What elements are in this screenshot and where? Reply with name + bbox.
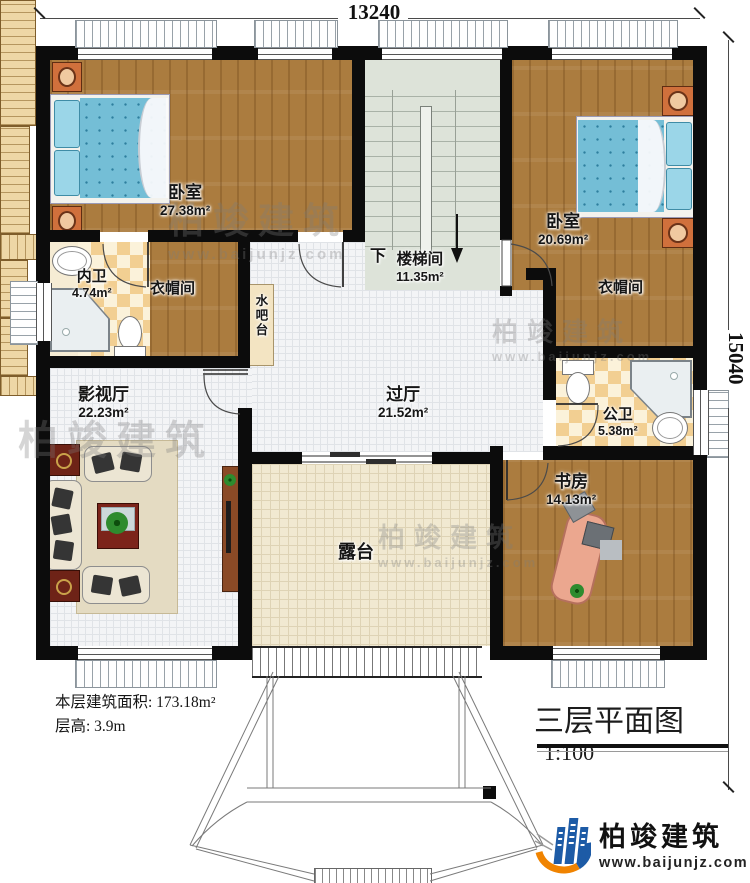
logo-website: www.baijunjz.com — [599, 855, 748, 871]
sliding-door-panel — [366, 459, 396, 464]
dimension-width: 13240 — [337, 0, 411, 25]
company-logo: 柏竣建筑 www.baijunjz.com — [533, 812, 748, 874]
stair-arrow-head — [451, 248, 463, 263]
room-name: 卧室 — [160, 183, 210, 203]
room-label-ensuite-bath: 内卫 4.74m² — [72, 268, 112, 300]
logo-text-group: 柏竣建筑 www.baijunjz.com — [599, 815, 748, 871]
title-block: 三层平面图 1:100 — [534, 696, 734, 766]
room-area: 21.52m² — [378, 405, 428, 421]
room-label-water-bar: 水吧台 — [250, 294, 270, 338]
door-leaf-bedroom-right — [502, 240, 511, 286]
logo-company-name: 柏竣建筑 — [599, 815, 748, 854]
room-name: 水吧台 — [253, 294, 268, 338]
room-area: 27.38m² — [160, 203, 210, 219]
room-label-bedroom-left: 卧室 27.38m² — [160, 183, 210, 219]
room-area: 22.23m² — [78, 405, 129, 421]
floor-plan: 柏竣建筑 www.baijunjz.com 柏竣建筑 柏竣建筑 www.baij… — [0, 0, 750, 883]
room-name: 卧室 — [538, 212, 588, 232]
room-name: 露台 — [338, 542, 374, 563]
room-label-study: 书房 14.13m² — [546, 472, 596, 508]
room-area: 14.13m² — [546, 492, 596, 508]
down-text: 下 — [370, 248, 386, 267]
logo-mark-icon — [533, 812, 591, 874]
room-name: 书房 — [546, 472, 596, 492]
room-label-cloakroom-left: 衣帽间 — [150, 280, 195, 298]
room-name: 过厅 — [378, 385, 428, 405]
title-underline-thin — [537, 751, 728, 752]
room-name: 衣帽间 — [598, 279, 643, 297]
room-label-public-bath: 公卫 5.38m² — [598, 406, 638, 438]
title-underline — [537, 744, 728, 748]
note-floor-height: 层高: 3.9m — [55, 714, 126, 736]
room-label-hall: 过厅 21.52m² — [378, 385, 428, 421]
lower-roof-outline — [190, 672, 543, 881]
room-area: 5.38m² — [598, 424, 638, 439]
stair-down-label: 下 — [370, 248, 386, 267]
door-arc-bedroom-right — [511, 244, 552, 286]
door-arc-study — [507, 463, 548, 500]
room-area: 20.69m² — [538, 232, 588, 248]
room-name: 内卫 — [72, 268, 112, 286]
door-arc-public-bath — [558, 405, 598, 446]
room-area: 4.74m² — [72, 286, 112, 301]
room-name: 影视厅 — [78, 385, 129, 405]
door-arc-media — [204, 375, 240, 414]
room-name: 公卫 — [598, 406, 638, 424]
plan-title: 三层平面图 — [534, 705, 684, 738]
room-name: 衣帽间 — [150, 280, 195, 298]
room-label-terrace: 露台 — [338, 542, 374, 563]
dimension-height: 15040 — [723, 332, 748, 385]
room-label-media-room: 影视厅 22.23m² — [78, 385, 129, 421]
room-label-stairwell: 楼梯间 11.35m² — [396, 251, 444, 285]
sliding-door-panel — [330, 452, 360, 457]
note-floor-area: 本层建筑面积: 173.18m² — [55, 690, 216, 712]
dimension-line — [40, 18, 338, 19]
door-leaf-media — [203, 370, 248, 374]
door-arc-bedroom-left — [299, 244, 341, 287]
dimension-line — [408, 18, 700, 19]
room-name: 楼梯间 — [396, 251, 444, 269]
room-label-cloakroom-right: 衣帽间 — [598, 279, 643, 297]
room-label-bedroom-right: 卧室 20.69m² — [538, 212, 588, 248]
room-area: 11.35m² — [396, 269, 444, 284]
dimension-line — [728, 40, 729, 330]
